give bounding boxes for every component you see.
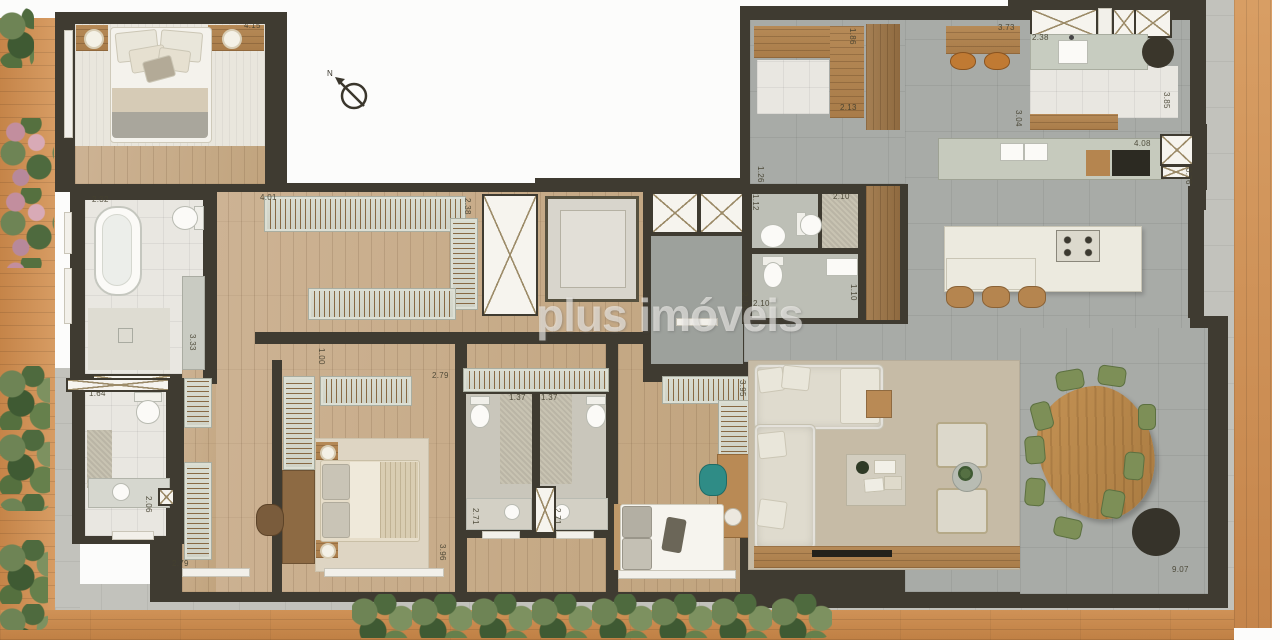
vanity-double [182, 276, 205, 370]
dining-chair [1123, 451, 1145, 481]
service-bath-floor [757, 60, 829, 114]
planter-row [352, 594, 832, 638]
wall [1188, 186, 1204, 318]
closet-rack [283, 376, 315, 470]
pillow [757, 431, 788, 460]
cabinet [1098, 8, 1112, 36]
wood-cabinet [866, 186, 900, 320]
shower-drain [118, 328, 133, 343]
toilet [136, 400, 160, 424]
bar-stool [950, 52, 976, 70]
planter [0, 540, 48, 630]
wall [166, 378, 184, 544]
door-bar [556, 531, 594, 539]
counter-sink [1024, 143, 1048, 161]
shaft-x [699, 192, 745, 234]
pillow [622, 538, 652, 570]
deck-left [0, 18, 55, 612]
lamp [222, 29, 242, 49]
shower [500, 394, 532, 484]
window-bar [618, 570, 736, 579]
bar-stool [984, 52, 1010, 70]
lamp [320, 543, 336, 559]
cabinet-x [1161, 165, 1191, 179]
closet-rack [308, 288, 456, 320]
closet-rack [184, 378, 212, 428]
planter [0, 366, 50, 511]
closet-rack [463, 368, 609, 392]
desk [282, 470, 315, 564]
dining-chair [1097, 364, 1128, 388]
elevator-cab [560, 210, 626, 288]
magazine [884, 476, 902, 490]
pouf [1132, 508, 1180, 556]
closet-rack [264, 196, 466, 232]
sink-counter [1030, 34, 1148, 70]
closet-rack [718, 400, 750, 458]
kitchen-shelf [1030, 114, 1118, 130]
island-stool [982, 286, 1010, 308]
bed-throw [112, 112, 208, 138]
toilet [800, 214, 822, 236]
side-table [866, 390, 892, 418]
wall [272, 360, 282, 592]
shaft-x [651, 192, 699, 234]
pillow [322, 502, 350, 538]
island-stool [946, 286, 974, 308]
window-bar [64, 268, 72, 324]
toilet [586, 404, 606, 428]
vanity [466, 498, 532, 530]
counter-sink [1000, 143, 1024, 161]
plant [958, 466, 973, 481]
floor-plan: N plus imóveis 4.152.323.331.642.062.794… [0, 0, 1280, 640]
teal-chair [699, 464, 727, 496]
books [874, 460, 896, 474]
dining-chair [1024, 435, 1046, 465]
dining-chair [1138, 404, 1156, 430]
armchair [936, 488, 988, 534]
bathtub-inner [102, 214, 132, 286]
service-counter [830, 26, 864, 118]
round-sink [760, 224, 786, 248]
sink [112, 483, 130, 501]
window-screen [66, 378, 170, 392]
armchair [936, 422, 988, 468]
cooktop [1056, 230, 1100, 262]
pillow [781, 365, 811, 392]
desk-lamp [724, 508, 742, 526]
toilet [470, 404, 490, 428]
master-bedroom-wood-floor [75, 146, 265, 184]
shaft-x [534, 486, 556, 534]
pillow [622, 506, 652, 538]
kitchen-sink [1058, 40, 1088, 64]
cabinet-x [1160, 134, 1194, 166]
door-bar [112, 531, 154, 540]
wardrobe-x [482, 194, 538, 316]
planter [0, 8, 34, 68]
shower [540, 394, 572, 484]
window-bar [64, 212, 72, 254]
desk-chair [256, 504, 284, 536]
bed-blanket [112, 88, 208, 114]
lamp [320, 445, 336, 461]
lamp [84, 29, 104, 49]
pillow [322, 464, 350, 500]
window-bar [182, 568, 250, 577]
planter-flowers [0, 118, 54, 268]
watermark: plus imóveis [536, 288, 803, 342]
shaft-x [158, 488, 175, 506]
breakfast-bar [946, 26, 1020, 54]
compass-north-label: N [327, 69, 333, 78]
closet-rack [320, 376, 412, 406]
kitchen-floor [1030, 66, 1178, 118]
bed-sheet [350, 462, 380, 538]
faucet [1069, 35, 1074, 40]
toilet [763, 262, 783, 288]
dining-chair [1024, 477, 1046, 507]
door-bar [482, 531, 520, 539]
grill [1112, 150, 1150, 176]
closet-rack [184, 462, 212, 560]
cutting-board [1086, 150, 1110, 176]
window-bar [64, 30, 73, 138]
deck-right [1234, 0, 1272, 628]
bath-fixture [826, 258, 858, 276]
north-compass: N [326, 66, 376, 116]
toilet [172, 206, 198, 230]
tv [812, 550, 892, 557]
sink [504, 504, 520, 520]
sink [554, 504, 570, 520]
plant-pot [856, 461, 869, 474]
round-appliance [1142, 36, 1174, 68]
bed-blanket [380, 462, 418, 538]
tall-cabinet [866, 24, 900, 130]
island-stool [1018, 286, 1046, 308]
pillow [756, 498, 788, 530]
shower [822, 194, 858, 248]
books [863, 477, 884, 493]
window-bar [324, 568, 444, 577]
wall [203, 192, 217, 384]
